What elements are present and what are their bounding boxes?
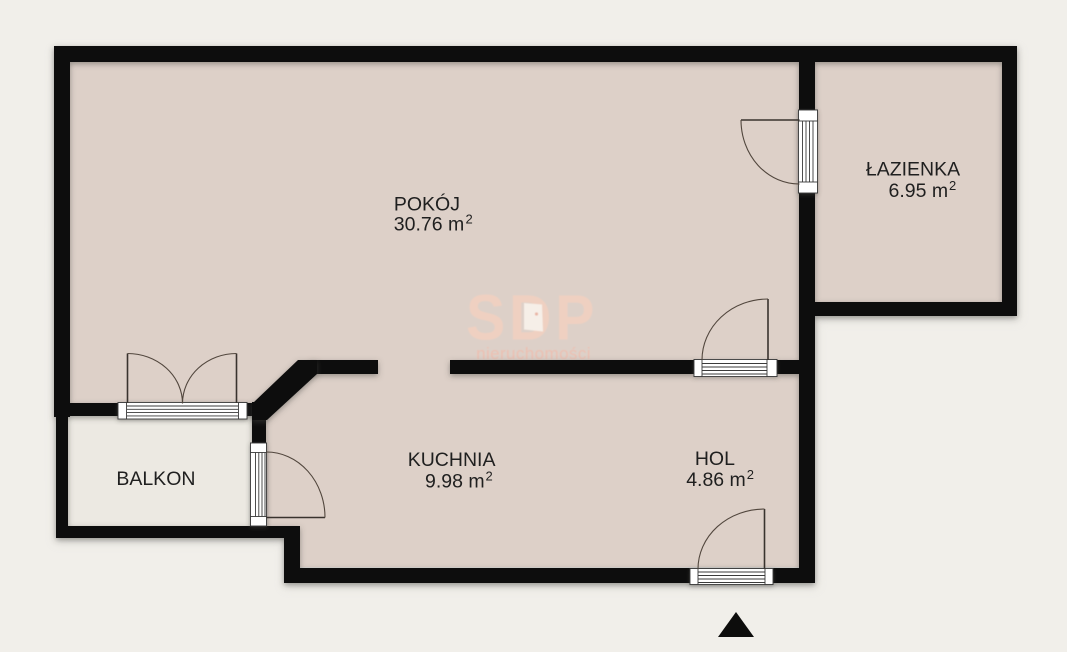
svg-text:HOL: HOL	[695, 448, 735, 470]
svg-text:2: 2	[486, 469, 493, 484]
svg-text:4.86 m: 4.86 m	[686, 469, 746, 491]
svg-text:POKÓJ: POKÓJ	[394, 193, 460, 216]
svg-text:2: 2	[466, 212, 473, 227]
svg-text:2: 2	[949, 178, 956, 193]
svg-text:BALKON: BALKON	[116, 468, 195, 490]
svg-text:2: 2	[747, 467, 754, 482]
svg-text:6.95 m: 6.95 m	[889, 180, 949, 202]
svg-text:9.98 m: 9.98 m	[425, 471, 485, 493]
svg-text:ŁAZIENKA: ŁAZIENKA	[866, 158, 960, 180]
svg-text:30.76 m: 30.76 m	[394, 214, 464, 236]
svg-text:KUCHNIA: KUCHNIA	[408, 449, 496, 471]
